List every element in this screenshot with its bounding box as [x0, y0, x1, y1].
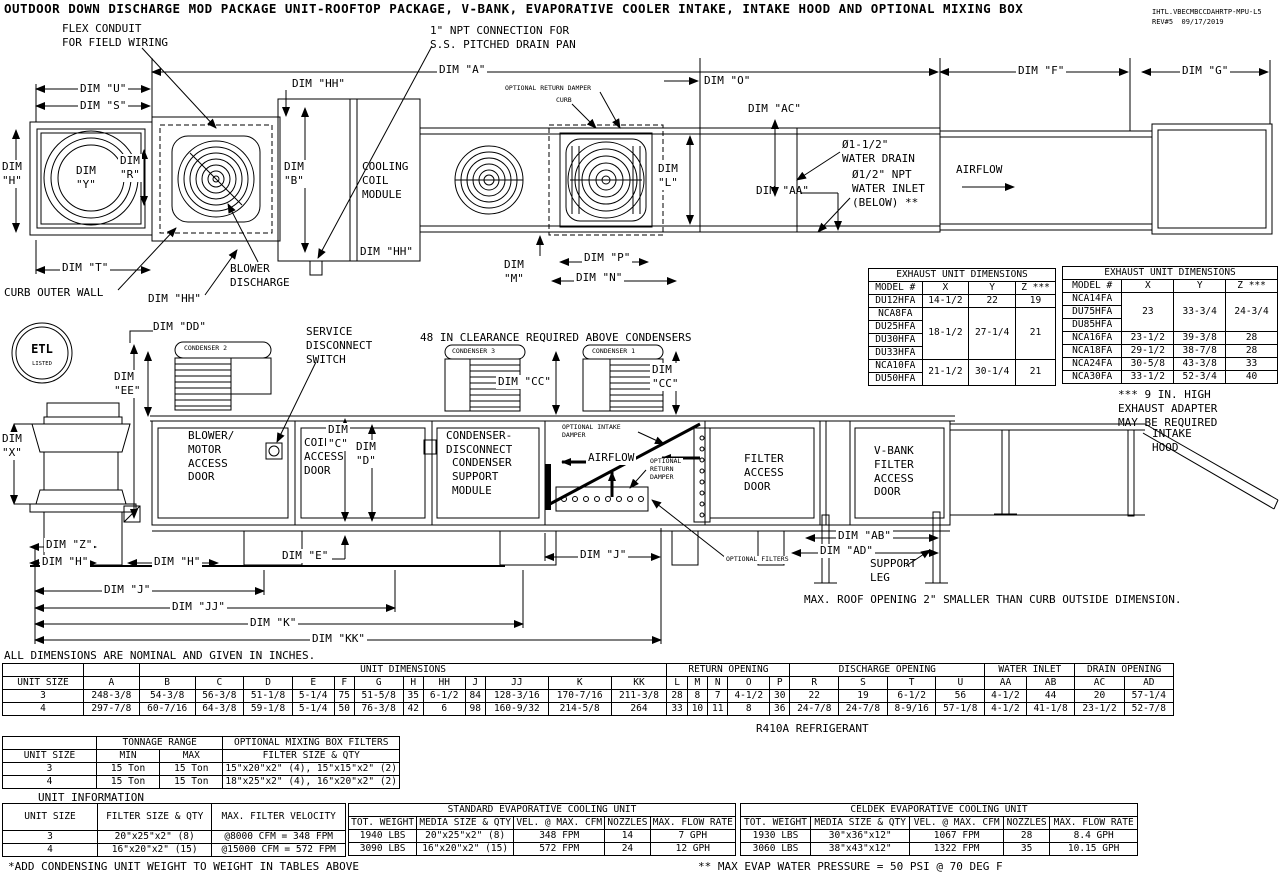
cell: 8-9/16 [887, 703, 936, 716]
header-cell: TOT. WEIGHT [349, 817, 417, 830]
cell: 15 Ton [160, 763, 223, 776]
cooling-coil-module-label: COOLING COIL MODULE [362, 160, 408, 201]
right-duct-section [940, 124, 1272, 234]
row: 1930 LBS 30"x36"x12" 1067 FPM 28 8.4 GPH [741, 830, 1138, 843]
dim-c-label: DIM "C" [326, 423, 350, 451]
cell: 14 [605, 830, 650, 843]
cell: 22 [790, 690, 839, 703]
dim-m-label: DIM "M" [502, 258, 526, 286]
header-cell: Y [1174, 280, 1226, 293]
cell: 33-1/2 [1122, 371, 1174, 384]
revision-date: REV#5 09/17/2019 [1152, 18, 1224, 26]
cell: 4 [3, 844, 98, 857]
dim-u-label: DIM "U" [78, 82, 128, 96]
cell [3, 737, 97, 750]
cell: 21-1/2 [922, 360, 969, 386]
dim-b-label: DIM "B" [282, 160, 306, 188]
row: 4 15 Ton 15 Ton 18"x25"x2" (4), 16"x20"x… [3, 776, 400, 789]
cell: 6-1/2 [423, 690, 465, 703]
support-leg-label: SUPPORT LEG [870, 557, 916, 585]
vbank-door-label: V-BANK FILTER ACCESS DOOR [874, 444, 914, 499]
cell: DU85HFA [1063, 319, 1122, 332]
cell: 43-3/8 [1174, 358, 1226, 371]
cell: 4 [3, 703, 84, 716]
header-cell: TOT. WEIGHT [741, 817, 811, 830]
cell: 7 GPH [650, 830, 735, 843]
drawing-sheet: ETL LISTED [0, 0, 1280, 873]
header-cell: K [548, 677, 611, 690]
row: TOT. WEIGHT MEDIA SIZE & QTY VEL. @ MAX.… [741, 817, 1138, 830]
dim-z-label: DIM "Z" [44, 538, 94, 552]
optional-return-damper-plan-label: OPTIONAL RETURN DAMPER [505, 85, 591, 93]
dim-a-label: DIM "A" [437, 63, 487, 77]
cell: DU30HFA [869, 334, 923, 347]
dim-aa-label: DIM "AA" [756, 184, 809, 198]
airflow-elevation-label: AIRFLOW [586, 451, 636, 465]
cell [84, 664, 140, 677]
roof-opening-note: MAX. ROOF OPENING 2" SMALLER THAN CURB O… [804, 593, 1182, 607]
header-cell: MODEL # [869, 282, 923, 295]
cell: 19 [839, 690, 888, 703]
cell: 35 [403, 690, 423, 703]
row: 3 20"x25"x2" (8) @8000 CFM = 348 FPM [3, 831, 346, 844]
row: TOT. WEIGHT MEDIA SIZE & QTY VEL. @ MAX.… [349, 817, 736, 830]
blower-motor-door-label: BLOWER/ MOTOR ACCESS DOOR [188, 429, 234, 484]
table-title: CELDEK EVAPORATIVE COOLING UNIT [741, 804, 1138, 817]
table-title: EXHAUST UNIT DIMENSIONS [1063, 267, 1278, 280]
row: CELDEK EVAPORATIVE COOLING UNIT [741, 804, 1138, 817]
header-cell: M [687, 677, 707, 690]
cell: 4-1/2 [985, 703, 1027, 716]
cell: 12 GPH [650, 843, 735, 856]
cell: 16"x20"x2" (15) [417, 843, 514, 856]
header-cell: E [292, 677, 334, 690]
cell: 19 [1016, 295, 1056, 308]
cell: 38-7/8 [1174, 345, 1226, 358]
row: NCA14FA 23 33-3/4 24-3/4 [1063, 293, 1278, 306]
header-cell: AD [1124, 677, 1173, 690]
etl-listed-logo: ETL LISTED [12, 323, 72, 383]
cell: @8000 CFM = 348 FPM [212, 831, 346, 844]
row: UNIT SIZE A B C D E F G H HH J JJ K KK L… [3, 677, 1174, 690]
header-cell: MAX. FILTER VELOCITY [212, 804, 346, 831]
cell: 18-1/2 [922, 308, 969, 360]
cell: 54-3/8 [139, 690, 195, 703]
dim-t-label: DIM "T" [60, 261, 110, 275]
dim-dd-label: DIM "DD" [153, 320, 206, 334]
cell: @15000 CFM = 572 FPM [212, 844, 346, 857]
header-cell: O [728, 677, 770, 690]
cell: 6-1/2 [887, 690, 936, 703]
cell: 10 [687, 703, 707, 716]
cell: NCA10FA [869, 360, 923, 373]
table-title: EXHAUST UNIT DIMENSIONS [869, 269, 1056, 282]
dim-g-label: DIM "G" [1180, 64, 1230, 78]
cell: NCA8FA [869, 308, 923, 321]
cell: 27-1/4 [969, 308, 1016, 360]
cell: 15"x20"x2" (4), 15"x15"x2" (2) [223, 763, 400, 776]
cell: 51-5/8 [354, 690, 403, 703]
cell: 33-3/4 [1174, 293, 1226, 332]
dim-ee-label: DIM "EE" [112, 370, 143, 398]
cell: 21 [1016, 308, 1056, 360]
header-cell: U [936, 677, 985, 690]
cell: 6 [423, 703, 465, 716]
header-cell: VEL. @ MAX. CFM [514, 817, 605, 830]
cell: 56-3/8 [195, 690, 244, 703]
cell: 40 [1226, 371, 1278, 384]
cell: DU12HFA [869, 295, 923, 308]
cell: 1322 FPM [910, 843, 1004, 856]
cell: 170-7/16 [548, 690, 611, 703]
dim-j-upper-label: DIM "J" [578, 548, 628, 562]
cell: 4-1/2 [728, 690, 770, 703]
row: EXHAUST UNIT DIMENSIONS [869, 269, 1056, 282]
cell: 35 [1003, 843, 1049, 856]
dimensions-note: ALL DIMENSIONS ARE NOMINAL AND GIVEN IN … [4, 649, 315, 663]
dim-d-label: DIM "D" [354, 440, 378, 468]
header-cell: D [244, 677, 293, 690]
cell: 22 [969, 295, 1016, 308]
cell: 28 [1003, 830, 1049, 843]
clearance-note: 48 IN CLEARANCE REQUIRED ABOVE CONDENSER… [420, 331, 692, 345]
header-cell: Z *** [1226, 280, 1278, 293]
header-cell: HH [423, 677, 465, 690]
dim-r-label: DIM "R" [118, 154, 142, 182]
table-title: STANDARD EVAPORATIVE COOLING UNIT [349, 804, 736, 817]
cell: 15 Ton [96, 763, 159, 776]
header-cell: MIN [96, 750, 159, 763]
header-cell: T [887, 677, 936, 690]
row: UNIT DIMENSIONS RETURN OPENING DISCHARGE… [3, 664, 1174, 677]
group-header: OPTIONAL MIXING BOX FILTERS [223, 737, 400, 750]
water-drain-label: Ø1-1/2" WATER DRAIN [842, 138, 915, 166]
cell: 30 [770, 690, 790, 703]
condenser-support-module-label: CONDENSER SUPPORT MODULE [452, 456, 512, 497]
cell: 10.15 GPH [1050, 843, 1138, 856]
etl-listed-text: LISTED [32, 361, 52, 367]
cell: 4-1/2 [985, 690, 1027, 703]
footnote-weight: *ADD CONDENSING UNIT WEIGHT TO WEIGHT IN… [8, 860, 359, 873]
cell: 7 [708, 690, 728, 703]
header-cell: H [403, 677, 423, 690]
cell [3, 664, 84, 677]
cell: 52-7/8 [1124, 703, 1173, 716]
dim-ab-label: DIM "AB" [836, 529, 893, 543]
row: NCA30FA 33-1/2 52-3/4 40 [1063, 371, 1278, 384]
cell: 264 [611, 703, 667, 716]
cell: 30"x36"x12" [810, 830, 909, 843]
cell: 57-1/4 [1124, 690, 1173, 703]
cell: DU50HFA [869, 373, 923, 386]
dim-l-label: DIM "L" [656, 162, 680, 190]
cell: 24 [605, 843, 650, 856]
cell: 8.4 GPH [1050, 830, 1138, 843]
dim-f-label: DIM "F" [1016, 64, 1066, 78]
cell: DU75HFA [1063, 306, 1122, 319]
cell: 29-1/2 [1122, 345, 1174, 358]
cell: 160-9/32 [485, 703, 548, 716]
cell: 20"x25"x2" (8) [98, 831, 212, 844]
header-cell: B [139, 677, 195, 690]
group-header: WATER INLET [985, 664, 1075, 677]
dim-cc-far-label: DIM "CC" [650, 363, 681, 391]
cell: 23-1/2 [1075, 703, 1124, 716]
cell: NCA16FA [1063, 332, 1122, 345]
dim-y-label: DIM "Y" [74, 164, 98, 192]
curb-outer-wall-label: CURB OUTER WALL [4, 286, 103, 300]
header-cell: AB [1026, 677, 1075, 690]
cell: 38"x43"x12" [810, 843, 909, 856]
header-cell: MAX [160, 750, 223, 763]
header-cell: AA [985, 677, 1027, 690]
cell: 28 [667, 690, 687, 703]
group-header: UNIT DIMENSIONS [139, 664, 667, 677]
dim-j-label: DIM "J" [102, 583, 152, 597]
return-exhaust-fan [549, 125, 663, 235]
row: NCA16FA 23-1/2 39-3/8 28 [1063, 332, 1278, 345]
cell: 8 [687, 690, 707, 703]
cell: DU33HFA [869, 347, 923, 360]
exhaust-dimensions-table-right: EXHAUST UNIT DIMENSIONS MODEL # X Y Z **… [1062, 266, 1278, 384]
header-cell: N [708, 677, 728, 690]
cell: 24-3/4 [1226, 293, 1278, 332]
condenser-disconnect-label: CONDENSER- DISCONNECT [446, 429, 512, 457]
row: UNIT SIZE FILTER SIZE & QTY MAX. FILTER … [3, 804, 346, 831]
footnote-pressure: ** MAX EVAP WATER PRESSURE = 50 PSI @ 70… [698, 860, 1003, 873]
header-cell: UNIT SIZE [3, 804, 98, 831]
cell: 23 [1122, 293, 1174, 332]
cell: 297-7/8 [84, 703, 140, 716]
dim-s-label: DIM "S" [78, 99, 128, 113]
exhaust-adapter-note: *** 9 IN. HIGH EXHAUST ADAPTER MAY BE RE… [1118, 388, 1217, 429]
header-cell: G [354, 677, 403, 690]
cell: 3090 LBS [349, 843, 417, 856]
cell: 50 [334, 703, 354, 716]
optional-return-damper-label: OPTIONAL RETURN DAMPER [648, 458, 683, 481]
service-disconnect-switch-box [266, 443, 282, 459]
cell: 39-3/8 [1174, 332, 1226, 345]
mixing-box-section [152, 117, 280, 241]
header-cell: MODEL # [1063, 280, 1122, 293]
header-cell: Y [969, 282, 1016, 295]
document-reference: IHTL.VBECMBCCDAHRTP-MPU-L5REV#5 09/17/20… [1152, 7, 1262, 27]
condenser-1-label: CONDENSER 1 [592, 348, 635, 356]
cell: 1930 LBS [741, 830, 811, 843]
cell: 248-3/8 [84, 690, 140, 703]
filter-access-door-label: FILTER ACCESS DOOR [744, 452, 784, 493]
flex-conduit-label: FLEX CONDUIT FOR FIELD WIRING [62, 22, 168, 50]
cell: 3 [3, 763, 97, 776]
dim-hh-top-label: DIM "HH" [292, 77, 345, 91]
blower-discharge-label: BLOWER DISCHARGE [230, 262, 290, 290]
cell: 3 [3, 831, 98, 844]
header-cell: MEDIA SIZE & QTY [810, 817, 909, 830]
cell: 214-5/8 [548, 703, 611, 716]
sheet-title: OUTDOOR DOWN DISCHARGE MOD PACKAGE UNIT-… [4, 1, 1023, 16]
row: STANDARD EVAPORATIVE COOLING UNIT [349, 804, 736, 817]
cell: 76-3/8 [354, 703, 403, 716]
row: NCA10FA 21-1/2 30-1/4 21 [869, 360, 1056, 373]
cell: 20"x25"x2" (8) [417, 830, 514, 843]
row: 3 248-3/8 54-3/8 56-3/8 51-1/8 5-1/4 75 … [3, 690, 1174, 703]
cell: 15 Ton [160, 776, 223, 789]
cell: 21 [1016, 360, 1056, 386]
header-cell: FILTER SIZE & QTY [98, 804, 212, 831]
cell: 33 [667, 703, 687, 716]
exhaust-dimensions-table-left: EXHAUST UNIT DIMENSIONS MODEL # X Y Z **… [868, 268, 1056, 386]
header-cell: R [790, 677, 839, 690]
row: 3090 LBS 16"x20"x2" (15) 572 FPM 24 12 G… [349, 843, 736, 856]
row: 4 16"x20"x2" (15) @15000 CFM = 572 FPM [3, 844, 346, 857]
cell: 4 [3, 776, 97, 789]
cell: 41-1/8 [1026, 703, 1075, 716]
unit-information-table: UNIT SIZE FILTER SIZE & QTY MAX. FILTER … [2, 803, 346, 857]
header-cell: UNIT SIZE [3, 750, 97, 763]
header-cell: AC [1075, 677, 1124, 690]
cell: 15 Ton [96, 776, 159, 789]
airflow-plan-label: AIRFLOW [956, 163, 1002, 177]
cell: 75 [334, 690, 354, 703]
cell: 98 [465, 703, 485, 716]
tonnage-table: TONNAGE RANGE OPTIONAL MIXING BOX FILTER… [2, 736, 400, 789]
header-cell: L [667, 677, 687, 690]
cell: 64-3/8 [195, 703, 244, 716]
optional-intake-damper-label: OPTIONAL INTAKE DAMPER [560, 424, 623, 440]
dim-k-label: DIM "K" [248, 616, 298, 630]
celdek-evap-table: CELDEK EVAPORATIVE COOLING UNIT TOT. WEI… [740, 803, 1138, 856]
dim-h-plan-label: DIM "H" [0, 160, 24, 188]
cell: 56 [936, 690, 985, 703]
dim-hh-bottom-label: DIM "HH" [148, 292, 201, 306]
header-cell: F [334, 677, 354, 690]
row: TONNAGE RANGE OPTIONAL MIXING BOX FILTER… [3, 737, 400, 750]
header-cell: UNIT SIZE [3, 677, 84, 690]
dim-e-label: DIM "E" [280, 549, 330, 563]
cell: 33 [1226, 358, 1278, 371]
header-cell: C [195, 677, 244, 690]
dim-p-label: DIM "P" [582, 251, 632, 265]
cell: 348 FPM [514, 830, 605, 843]
cell: 11 [708, 703, 728, 716]
dim-cc-label: DIM "CC" [496, 375, 553, 389]
standard-evap-table: STANDARD EVAPORATIVE COOLING UNIT TOT. W… [348, 803, 736, 856]
row: NCA18FA 29-1/2 38-7/8 28 [1063, 345, 1278, 358]
row: 4 297-7/8 60-7/16 64-3/8 59-1/8 5-1/4 50… [3, 703, 1174, 716]
header-cell: J [465, 677, 485, 690]
dim-o-label: DIM "O" [704, 74, 750, 88]
dim-ad-label: DIM "AD" [818, 544, 875, 558]
dim-jj-label: DIM "JJ" [170, 600, 227, 614]
group-header: DISCHARGE OPENING [790, 664, 985, 677]
cell: 59-1/8 [244, 703, 293, 716]
header-cell: KK [611, 677, 667, 690]
cell: 16"x20"x2" (15) [98, 844, 212, 857]
cell: 84 [465, 690, 485, 703]
refrigerant-note: R410A REFRIGERANT [756, 722, 869, 736]
cell: 8 [728, 703, 770, 716]
cell: DU25HFA [869, 321, 923, 334]
cell: 3060 LBS [741, 843, 811, 856]
cell: 42 [403, 703, 423, 716]
dim-ac-label: DIM "AC" [748, 102, 801, 116]
cell: 52-3/4 [1174, 371, 1226, 384]
curb-label: CURB [556, 97, 572, 105]
cell: 20 [1075, 690, 1124, 703]
intake-hood [950, 424, 1278, 516]
cell: 24-7/8 [790, 703, 839, 716]
cell: 1067 FPM [910, 830, 1004, 843]
cell: NCA18FA [1063, 345, 1122, 358]
cell: NCA30FA [1063, 371, 1122, 384]
header-cell: Z *** [1016, 282, 1056, 295]
cell: 57-1/8 [936, 703, 985, 716]
row: NCA24FA 30-5/8 43-3/8 33 [1063, 358, 1278, 371]
row: 3060 LBS 38"x43"x12" 1322 FPM 35 10.15 G… [741, 843, 1138, 856]
header-cell: FILTER SIZE & QTY [223, 750, 400, 763]
dim-h-mid-label: DIM "H" [152, 555, 202, 569]
intake-hood-label: INTAKE HOOD [1152, 427, 1192, 455]
dim-kk-label: DIM "KK" [310, 632, 367, 646]
cell: 5-1/4 [292, 703, 334, 716]
cell: 60-7/16 [139, 703, 195, 716]
header-cell: A [84, 677, 140, 690]
npt-connection-label: 1" NPT CONNECTION FOR S.S. PITCHED DRAIN… [430, 24, 576, 52]
group-header: DRAIN OPENING [1075, 664, 1174, 677]
cell: 30-1/4 [969, 360, 1016, 386]
header-cell: S [839, 677, 888, 690]
row: DU12HFA 14-1/2 22 19 [869, 295, 1056, 308]
cell: NCA24FA [1063, 358, 1122, 371]
row: UNIT SIZE MIN MAX FILTER SIZE & QTY [3, 750, 400, 763]
group-header: TONNAGE RANGE [96, 737, 222, 750]
cell: NCA14FA [1063, 293, 1122, 306]
cell: 128-3/16 [485, 690, 548, 703]
service-disconnect-label: SERVICE DISCONNECT SWITCH [306, 325, 372, 366]
dim-hh-right-label: DIM "HH" [360, 245, 413, 259]
dim-h-left-label: DIM "H" [40, 555, 90, 569]
row: MODEL # X Y Z *** [869, 282, 1056, 295]
etl-letters: ETL [31, 342, 53, 356]
cell: 572 FPM [514, 843, 605, 856]
header-cell: MAX. FLOW RATE [650, 817, 735, 830]
dim-n-label: DIM "N" [574, 271, 624, 285]
row: MODEL # X Y Z *** [1063, 280, 1278, 293]
plan-view [16, 46, 1272, 295]
header-cell: VEL. @ MAX. CFM [910, 817, 1004, 830]
header-cell: NOZZLES [605, 817, 650, 830]
cell: 30-5/8 [1122, 358, 1174, 371]
header-cell: NOZZLES [1003, 817, 1049, 830]
header-cell: MEDIA SIZE & QTY [417, 817, 514, 830]
dim-x-label: DIM "X" [0, 432, 24, 460]
cell: 28 [1226, 332, 1278, 345]
header-cell: JJ [485, 677, 548, 690]
cell: 24-7/8 [839, 703, 888, 716]
row: NCA8FA 18-1/2 27-1/4 21 [869, 308, 1056, 321]
water-inlet-label: Ø1/2" NPT WATER INLET (BELOW) ** [852, 168, 925, 209]
cell: 36 [770, 703, 790, 716]
cell: 14-1/2 [922, 295, 969, 308]
deck-rails [150, 416, 955, 531]
header-cell: MAX. FLOW RATE [1050, 817, 1138, 830]
cell: 28 [1226, 345, 1278, 358]
condenser-3-label: CONDENSER 3 [452, 348, 495, 356]
header-cell: P [770, 677, 790, 690]
cell: 3 [3, 690, 84, 703]
header-cell: X [922, 282, 969, 295]
cell: 1940 LBS [349, 830, 417, 843]
